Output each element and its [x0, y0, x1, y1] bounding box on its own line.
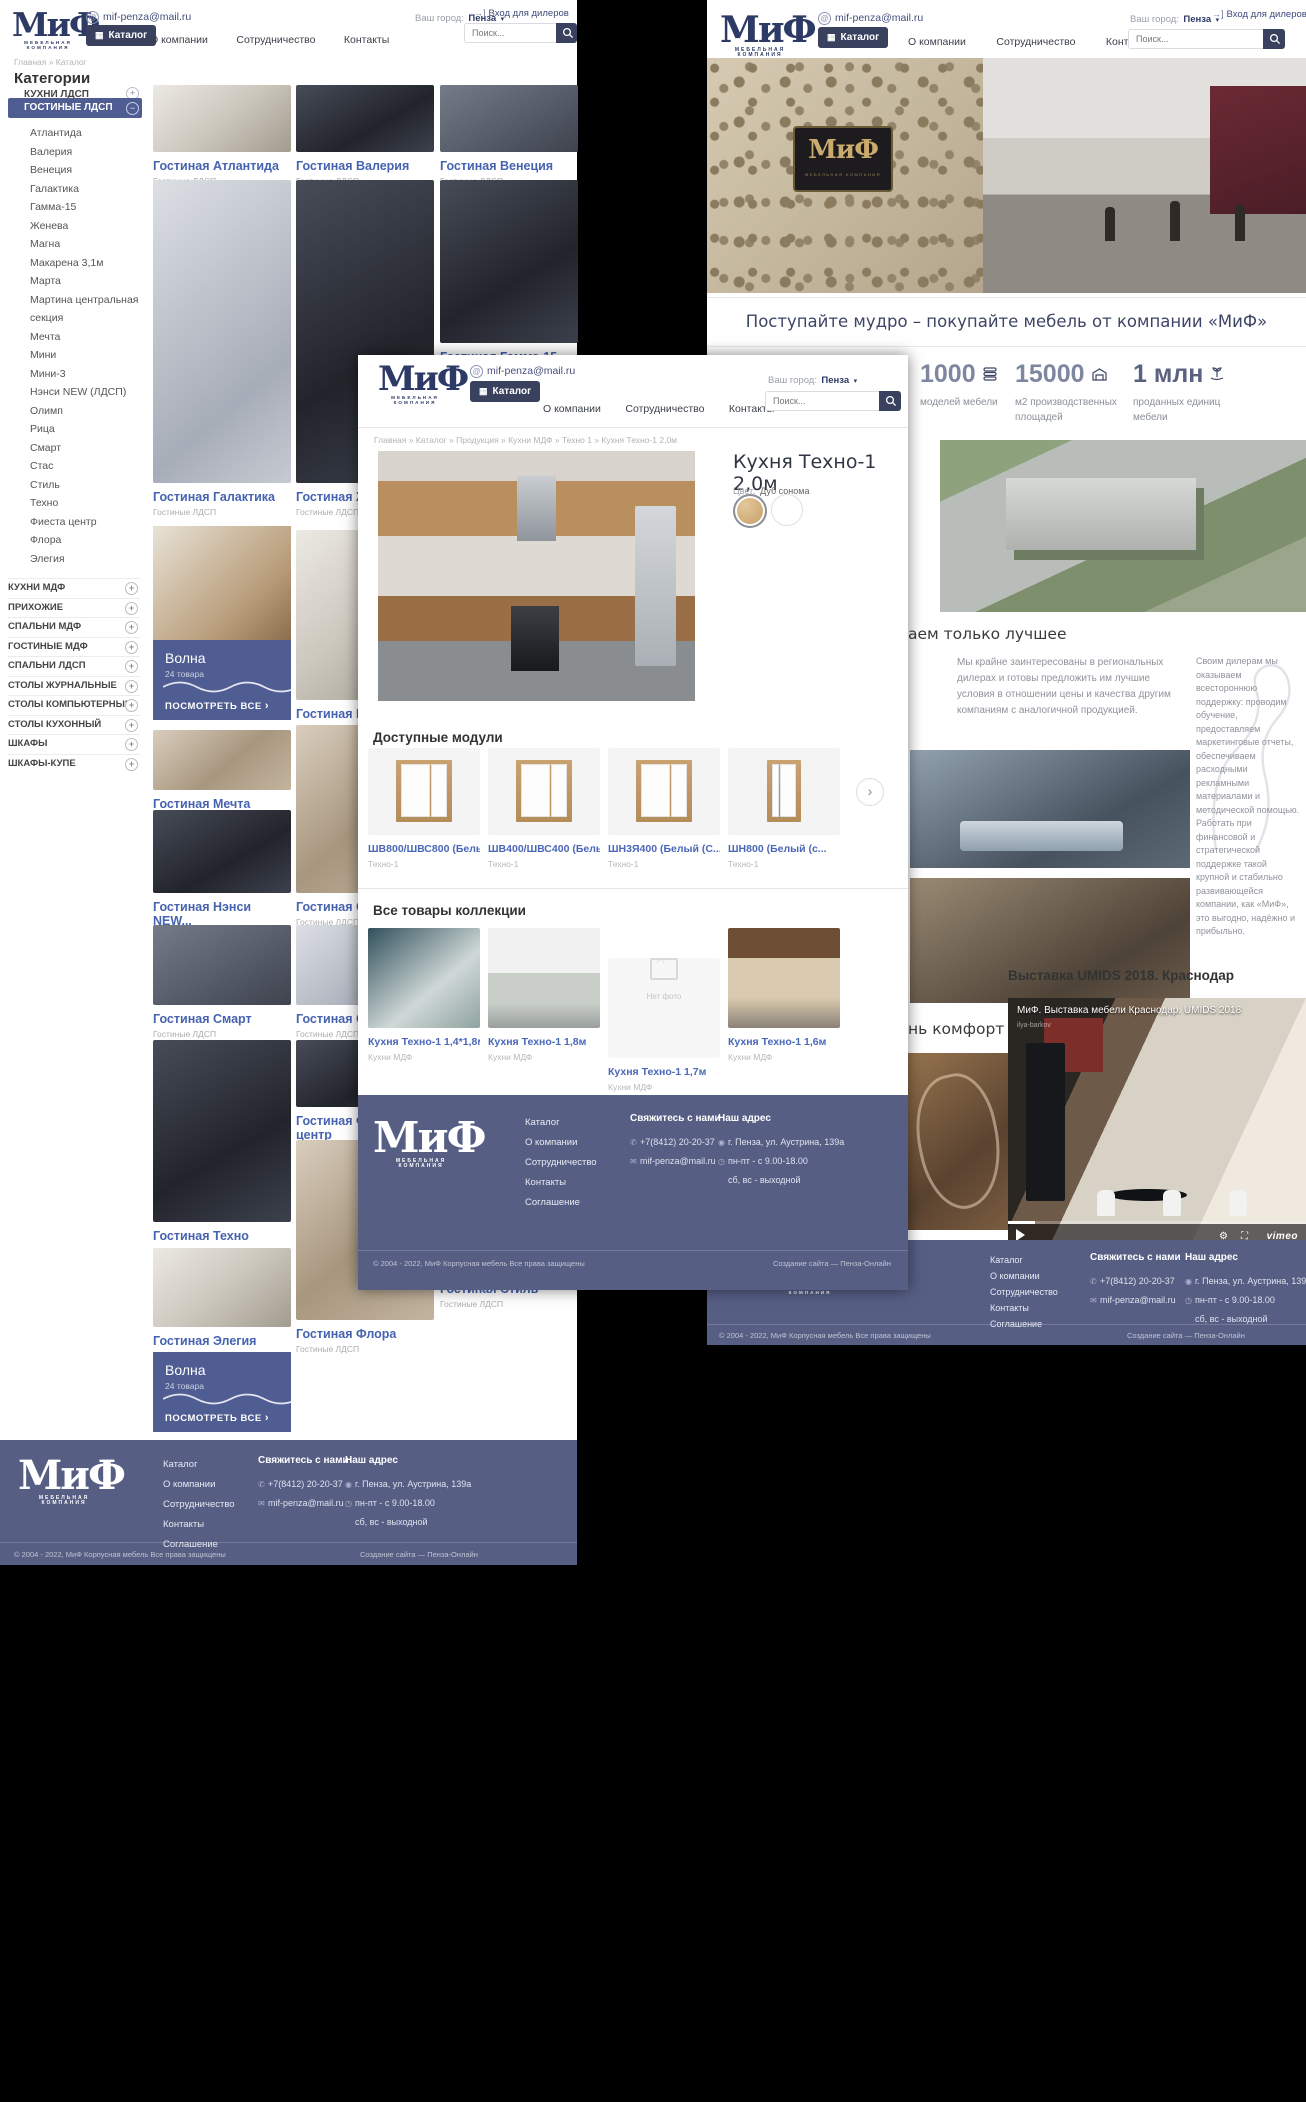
exhibition-photo [983, 58, 1306, 293]
factory-aerial-photo [940, 440, 1306, 612]
mif-logo[interactable]: МиФ МЕБЕЛЬНАЯ КОМПАНИЯ [720, 12, 800, 58]
clock-icon: ◷ [345, 1494, 355, 1513]
product-photo [153, 925, 291, 1005]
sidebar-accordion-item[interactable]: СПАЛЬНИ МДФ+ [8, 617, 140, 637]
footer-phone[interactable]: ✆+7(8412) 20-20-37 [1090, 1272, 1181, 1291]
product-card[interactable]: Гостиная Валерия Гостиные ЛДСП [296, 85, 434, 186]
product-photo [153, 730, 291, 790]
footer-contacts: Свяжитесь с нами ✆+7(8412) 20-20-37 ✉mif… [1090, 1252, 1181, 1310]
sidebar-subcategory[interactable]: Олимп [8, 402, 140, 421]
plus-icon[interactable]: + [125, 660, 138, 673]
sidebar-subcategory[interactable]: Венеция [8, 161, 140, 180]
site-credits[interactable]: Создание сайта — Пенза-Онлайн [773, 1259, 891, 1268]
plus-icon[interactable]: + [125, 641, 138, 654]
section-heading-best: аем только лучшее [908, 625, 1298, 643]
product-photo [153, 1040, 291, 1222]
footer-link[interactable]: Каталог [163, 1455, 235, 1475]
footer-link[interactable]: Контакты [990, 1300, 1058, 1316]
footer-link[interactable]: Соглашение [525, 1193, 597, 1213]
footer-email[interactable]: ✉mif-penza@mail.ru [258, 1494, 349, 1513]
mif-logo[interactable]: МиФ МЕБЕЛЬНАЯ КОМПАНИЯ [12, 8, 84, 50]
sidebar-subcategory[interactable]: Макарена 3,1м [8, 254, 140, 273]
nav-cooperation[interactable]: Сотрудничество [996, 36, 1075, 48]
sidebar-subcategory[interactable]: Смарт [8, 439, 140, 458]
product-page-window: МиФ МЕБЕЛЬНАЯ КОМПАНИЯ @mif-penza@mail.r… [358, 355, 908, 1290]
header-email[interactable]: @mif-penza@mail.ru [470, 365, 575, 378]
sidebar-subcategory[interactable]: Техно [8, 494, 140, 513]
search-box [765, 391, 901, 411]
product-photo [153, 85, 291, 152]
dealer-paragraph-1: Мы крайне заинтересованы в региональных … [957, 655, 1189, 719]
sidebar-subcategory[interactable]: Магна [8, 235, 140, 254]
grid-column-1: Гостиная Атлантида Гостиные ЛДСП Гостина… [153, 85, 291, 1447]
headline: Поступайте мудро – покупайте мебель от к… [707, 298, 1306, 345]
sidebar-subcategory[interactable]: Элегия [8, 550, 140, 569]
product-card[interactable]: Гостиная Галактика Гостиные ЛДСП [153, 180, 291, 517]
module-photo [608, 748, 720, 835]
pin-icon: ◉ [718, 1133, 728, 1152]
sidebar-subcategory[interactable]: Марта [8, 272, 140, 291]
mail-icon: ✉ [258, 1494, 268, 1513]
footer-links: КаталогО компанииСотрудничествоКонтактыС… [990, 1252, 1058, 1332]
search-icon [1269, 33, 1281, 45]
collection-photo [728, 928, 840, 1028]
sidebar-accordion-item[interactable]: СПАЛЬНИ ЛДСП+ [8, 656, 140, 676]
footer-email[interactable]: ✉mif-penza@mail.ru [1090, 1291, 1181, 1310]
dealer-meeting-photo [910, 750, 1190, 868]
carousel-next-button[interactable]: › [856, 778, 884, 806]
grid-icon: ▦ [95, 25, 104, 46]
collection-heading: Все товары коллекции [373, 903, 526, 918]
footer-links: КаталогО компанииСотрудничествоКонтактыС… [525, 1113, 597, 1213]
module-card[interactable]: ШН3Я400 (Белый (С... Техно-1 [608, 748, 720, 869]
hand-sprout-icon [1209, 369, 1225, 386]
chevron-down-icon: ▾ [854, 378, 858, 385]
booth-wall [1210, 86, 1306, 214]
product-card[interactable]: Гостиная Венеция Гостиные ЛДСП [440, 85, 578, 186]
header-email[interactable]: @mif-penza@mail.ru [818, 12, 923, 25]
at-icon: @ [470, 365, 483, 378]
sidebar-subcategory[interactable]: Фиеста центр [8, 513, 140, 532]
sidebar-subcategory[interactable]: Женева [8, 217, 140, 236]
search-icon [562, 27, 574, 39]
product-photo [153, 810, 291, 893]
product-photo [153, 180, 291, 483]
footer-link[interactable]: Каталог [990, 1252, 1058, 1268]
footer-link[interactable]: Контакты [163, 1515, 235, 1535]
at-icon: @ [818, 12, 831, 25]
sidebar-subcategory[interactable]: Валерия [8, 143, 140, 162]
sidebar-subcategory[interactable]: Мини-3 [8, 365, 140, 384]
sidebar-accordion-item[interactable]: ШКАФЫ+ [8, 734, 140, 754]
nav-about[interactable]: О компании [543, 403, 601, 415]
plus-icon[interactable]: + [125, 621, 138, 634]
volna-promo-card[interactable]: Волна 24 товара ПОСМОТРЕТЬ ВСЕ › [153, 1352, 291, 1432]
footer-email[interactable]: ✉mif-penza@mail.ru [630, 1152, 721, 1171]
mif-logo[interactable]: МиФ МЕБЕЛЬНАЯ КОМПАНИЯ [378, 362, 452, 405]
wood-carving-photo [908, 1053, 1009, 1230]
footer-link[interactable]: Каталог [525, 1113, 597, 1133]
search-input[interactable] [765, 391, 879, 411]
section-heading-comfort: нь комфортной, красивой и уютной! [908, 1020, 1004, 1038]
footer-link[interactable]: О компании [525, 1133, 597, 1153]
footer: МиФ МЕБЕЛЬНАЯ КОМПАНИЯ КаталогО компании… [0, 1440, 577, 1565]
product-card[interactable]: Гостиная Атлантида Гостиные ЛДСП [153, 85, 291, 186]
nav-about[interactable]: О компании [150, 34, 208, 46]
stat-sold: 1 млн проданных единиц мебели [1133, 360, 1233, 425]
site-credits[interactable]: Создание сайта — Пенза-Онлайн [1127, 1331, 1245, 1340]
sidebar-subcategory[interactable]: Мечта [8, 328, 140, 347]
sidebar-accordion-item[interactable]: ПРИХОЖИЕ+ [8, 598, 140, 618]
footer-link[interactable]: Сотрудничество [525, 1153, 597, 1173]
video-watermark: ilya-barkov [1017, 1022, 1051, 1029]
at-icon: @ [86, 11, 99, 24]
footer-address: Наш адрес ◉г. Пенза, ул. Аустрина, 139а … [718, 1113, 844, 1190]
module-card[interactable]: ШВ400/ШВС400 (Белый (... Техно-1 [488, 748, 600, 869]
dealer-paragraph-2: Своим дилерам мы оказываем всестороннюю … [1196, 655, 1300, 939]
dealer-talk-photo [910, 878, 1190, 1003]
login-icon: →] [1212, 9, 1224, 19]
sidebar-accordion-list: КУХНИ МДФ+ПРИХОЖИЕ+СПАЛЬНИ МДФ+ГОСТИНЫЕ … [8, 578, 140, 773]
product-card[interactable]: Гостиная Техно Гостиные ЛДСП [153, 1040, 291, 1256]
plus-icon[interactable]: + [125, 758, 138, 771]
product-photo [153, 1248, 291, 1327]
sidebar-subcategory[interactable]: Галактика [8, 180, 140, 199]
sidebar-subcategory[interactable]: Стиль [8, 476, 140, 495]
product-photo [440, 85, 578, 152]
product-photo [440, 180, 578, 343]
color-swatch-oak-selected[interactable] [733, 494, 767, 528]
vimeo-video-player[interactable]: МиФ. Выставка мебели Краснодар. UMIDS 20… [1008, 998, 1306, 1246]
footer-contacts: Свяжитесь с нами ✆+7(8412) 20-20-37 ✉mif… [258, 1455, 349, 1513]
module-card[interactable]: ШВ800/ШВС800 (Белый (... Техно-1 [368, 748, 480, 869]
search-box [1128, 29, 1285, 49]
clock-icon: ◷ [718, 1152, 728, 1171]
headline-band: Поступайте мудро – покупайте мебель от к… [707, 297, 1306, 347]
footer: МиФ МЕБЕЛЬНАЯ КОМПАНИЯ КаталогО компании… [358, 1095, 908, 1290]
modules-heading: Доступные модули [373, 730, 503, 745]
footer-links: КаталогО компанииСотрудничествоКонтактыС… [163, 1455, 235, 1555]
sidebar-accordion-item[interactable]: ГОСТИНЫЕ МДФ+ [8, 637, 140, 657]
footer-contacts: Свяжитесь с нами ✆+7(8412) 20-20-37 ✉mif… [630, 1113, 721, 1171]
pin-icon: ◉ [345, 1475, 355, 1494]
sidebar-subcategory[interactable]: Нэнси NEW (ЛДСП) [8, 383, 140, 402]
collection-card[interactable]: Кухня Техно-1 1,8м Кухни МДФ [488, 928, 600, 1062]
wave-ornament-icon [163, 678, 298, 696]
product-photo [296, 85, 434, 152]
footer-link[interactable]: Сотрудничество [990, 1284, 1058, 1300]
phone-icon: ✆ [1090, 1272, 1100, 1291]
catalog-button[interactable]: ▦Каталог [86, 25, 156, 46]
footer-link[interactable]: Контакты [525, 1173, 597, 1193]
site-credits[interactable]: Создание сайта — Пенза-Онлайн [360, 1550, 478, 1559]
see-all-link[interactable]: ПОСМОТРЕТЬ ВСЕ › [165, 1412, 269, 1424]
login-icon: →] [474, 8, 486, 18]
module-photo [488, 748, 600, 835]
search-button[interactable] [556, 23, 577, 43]
product-main-photo[interactable] [378, 451, 695, 701]
collection-card[interactable]: Нет фото Кухня Техно-1 1,7м Кухни МДФ [608, 928, 720, 1092]
sidebar-subcategory[interactable]: Флора [8, 531, 140, 550]
sidebar-subcategory-list: АтлантидаВалерияВенецияГалактикаГамма-15… [8, 124, 140, 568]
sidebar-subcategory[interactable]: Мини [8, 346, 140, 365]
grid-icon: ▦ [827, 27, 836, 48]
search-input[interactable] [1128, 29, 1263, 49]
module-photo [368, 748, 480, 835]
nav-cooperation[interactable]: Сотрудничество [236, 34, 315, 46]
plus-icon[interactable]: + [125, 699, 138, 712]
sidebar-accordion-item[interactable]: СТОЛЫ КУХОННЫЙ+ [8, 715, 140, 735]
stat-area: 15000 м2 производственных площадей [1015, 360, 1125, 425]
search-button[interactable] [879, 391, 901, 411]
search-button[interactable] [1263, 29, 1285, 49]
copyright: © 2004 - 2022, МиФ Корпусная мебель Все … [373, 1259, 585, 1268]
sidebar-subcategory[interactable]: Стас [8, 457, 140, 476]
product-card[interactable]: Гостиная Смарт Гостиные ЛДСП [153, 925, 291, 1039]
header-email[interactable]: @mif-penza@mail.ru [86, 11, 191, 24]
module-photo [728, 748, 840, 835]
plus-icon[interactable]: + [125, 680, 138, 693]
catalog-button[interactable]: ▦Каталог [470, 381, 540, 402]
footer-address: Наш адрес ◉г. Пенза, ул. Аустрина, 139а … [1185, 1252, 1306, 1329]
grid-icon: ▦ [479, 381, 488, 402]
see-all-link[interactable]: ПОСМОТРЕТЬ ВСЕ › [165, 700, 269, 712]
product-card[interactable]: Гостиная Элегия Гостиные ЛДСП [153, 1248, 291, 1361]
video-section-heading: Выставка UMIDS 2018. Краснодар [1008, 968, 1234, 983]
promo-photo [153, 526, 291, 640]
copyright: © 2004 - 2022, МиФ Корпусная мебель Все … [14, 1550, 226, 1559]
collection-photo [488, 928, 600, 1028]
stat-models: 1000 моделей мебели [920, 360, 1012, 411]
mif-footer-logo: МиФ МЕБЕЛЬНАЯ КОМПАНИЯ [18, 1456, 110, 1506]
image-icon [650, 958, 678, 980]
collection-card[interactable]: Кухня Техно-1 1,6м Кухни МДФ [728, 928, 840, 1062]
dealers-login-link[interactable]: →]Вход для дилеров [1212, 9, 1306, 20]
search-box [464, 23, 577, 43]
search-input[interactable] [464, 23, 556, 43]
dealers-login-link[interactable]: →]Вход для дилеров [474, 8, 569, 19]
sidebar-subcategory[interactable]: Атлантида [8, 124, 140, 143]
footer-link[interactable]: О компании [163, 1475, 235, 1495]
furniture-stack-icon [982, 369, 998, 386]
no-photo-placeholder: Нет фото [608, 958, 720, 1058]
sidebar-accordion-item[interactable]: ШКАФЫ-КУПЕ+ [8, 754, 140, 774]
pin-icon: ◉ [1185, 1272, 1195, 1291]
plus-icon[interactable]: + [125, 602, 138, 615]
minus-icon[interactable]: − [126, 102, 139, 115]
breadcrumb[interactable]: Главная » Каталог [14, 57, 87, 67]
sidebar-accordion-item[interactable]: СТОЛЫ КОМПЬЮТЕРНЫЕ+ [8, 695, 140, 715]
sidebar-subcategory[interactable]: Гамма-15 [8, 198, 140, 217]
footer-link[interactable]: О компании [990, 1268, 1058, 1284]
sidebar-subcategory[interactable]: Мартина центральная секция [8, 291, 140, 328]
mail-icon: ✉ [1090, 1291, 1100, 1310]
city-selector[interactable]: Ваш город: Пенза ▾ [768, 370, 857, 388]
sidebar-accordion-item[interactable]: КУХНИ МДФ+ [8, 578, 140, 598]
breadcrumb[interactable]: Главная » Каталог » Продукция » Кухни МД… [374, 435, 677, 445]
collection-photo [368, 928, 480, 1028]
footer-address: Наш адрес ◉г. Пенза, ул. Аустрина, 139а … [345, 1455, 471, 1532]
product-card[interactable]: Гостиная Нэнси NEW... Гостиные ЛДСП [153, 810, 291, 942]
factory-building-icon [1091, 369, 1108, 386]
plus-icon[interactable]: + [125, 738, 138, 751]
mail-icon: ✉ [630, 1152, 640, 1171]
module-card[interactable]: ШН800 (Белый (с... Техно-1 [728, 748, 840, 869]
search-icon [885, 395, 897, 407]
city-selector[interactable]: Ваш город: Пенза ▾ [1130, 9, 1219, 27]
color-swatch-white[interactable] [771, 494, 803, 526]
mif-sign: МиФМЕБЕЛЬНАЯ КОМПАНИЯ [793, 126, 893, 192]
clock-icon: ◷ [1185, 1291, 1195, 1310]
plus-icon[interactable]: + [125, 719, 138, 732]
phone-icon: ✆ [630, 1133, 640, 1152]
footer-phone[interactable]: ✆+7(8412) 20-20-37 [258, 1475, 349, 1494]
plus-icon[interactable]: + [125, 582, 138, 595]
phone-icon: ✆ [258, 1475, 268, 1494]
nav-cooperation[interactable]: Сотрудничество [625, 403, 704, 415]
nav-contacts[interactable]: Контакты [344, 34, 389, 46]
collection-card[interactable]: Кухня Техно-1 1,4*1,8м Кухни МДФ [368, 928, 480, 1062]
sidebar-item-livingrooms-ldsp-selected[interactable]: ГОСТИНЫЕ ЛДСП [8, 98, 142, 118]
volna-promo-card[interactable]: Волна 24 товара ПОСМОТРЕТЬ ВСЕ › [153, 526, 291, 720]
copyright: © 2004 - 2022, МиФ Корпусная мебель Все … [719, 1331, 931, 1340]
page-title: Категории [14, 70, 90, 87]
footer-link[interactable]: Сотрудничество [163, 1495, 235, 1515]
catalog-button[interactable]: ▦Каталог [818, 27, 888, 48]
product-card[interactable]: Гостиная Гамма-15 Гостиные ЛДСП [440, 180, 578, 377]
nav-about[interactable]: О компании [908, 36, 966, 48]
video-title[interactable]: МиФ. Выставка мебели Краснодар. UMIDS 20… [1017, 1005, 1241, 1016]
footer-phone[interactable]: ✆+7(8412) 20-20-37 [630, 1133, 721, 1152]
sidebar-subcategory[interactable]: Рица [8, 420, 140, 439]
mif-footer-logo: МиФ МЕБЕЛЬНАЯ КОМПАНИЯ [373, 1117, 469, 1169]
hero-slider[interactable]: МиФМЕБЕЛЬНАЯ КОМПАНИЯ [707, 58, 1306, 293]
wave-ornament-icon [163, 1390, 298, 1408]
sidebar-accordion-item[interactable]: СТОЛЫ ЖУРНАЛЬНЫЕ+ [8, 676, 140, 696]
